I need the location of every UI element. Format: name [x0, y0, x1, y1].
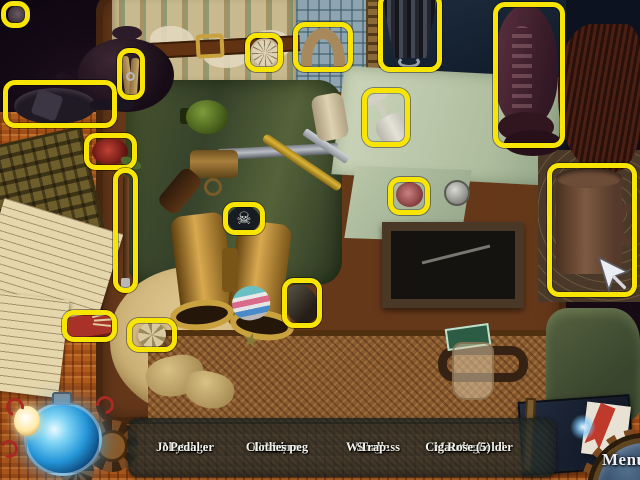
rose-item[interactable]	[138, 322, 166, 348]
menu-button-label[interactable]: Menu	[602, 450, 640, 470]
strap-buckle	[195, 33, 224, 58]
sparkle-effect	[570, 414, 596, 440]
teapot-lid	[112, 26, 142, 40]
jolly-roger-item[interactable]: ☠	[228, 206, 260, 233]
trap-handle	[90, 100, 134, 110]
photo-frame	[382, 222, 524, 308]
item-label-pedal[interactable]: Pedal	[170, 440, 200, 455]
item-list-column: Mouth guard Cigarette holder Rose (5)	[409, 420, 529, 475]
game-scene: ★ ☠	[0, 0, 640, 480]
photo-glare	[422, 245, 491, 265]
clothes-peg-spring	[126, 72, 135, 81]
item-label-trap[interactable]: Trap	[360, 440, 386, 455]
handwritten-paper	[0, 292, 70, 398]
glass-jar	[452, 342, 494, 400]
item-label-rose[interactable]: Rose (5)	[447, 440, 490, 455]
cigarette-holder-tip	[121, 278, 130, 289]
wig	[558, 24, 640, 172]
revolver-trigger-guard	[204, 178, 222, 196]
mug-rim	[556, 168, 622, 188]
binoculars-hinge	[222, 248, 238, 292]
snake-belly	[512, 26, 532, 118]
item-label-clothes-peg[interactable]: Clothes peg	[246, 440, 308, 455]
cursor-icon	[596, 256, 630, 296]
item-list-bar: Matches Jolly roger Pedal Map Cranium Cl…	[128, 418, 556, 477]
medallion-item[interactable]	[250, 38, 280, 68]
cigarette-holder-item[interactable]	[123, 176, 129, 284]
revolver-cylinder	[190, 150, 238, 178]
snake-coil	[504, 130, 562, 156]
rose-item[interactable]	[8, 5, 30, 25]
mug-handle	[616, 204, 640, 246]
pleated-item-hook	[398, 56, 420, 68]
pocket-watch	[444, 180, 470, 206]
green-bottle	[186, 100, 228, 134]
rose-item[interactable]	[396, 182, 423, 207]
